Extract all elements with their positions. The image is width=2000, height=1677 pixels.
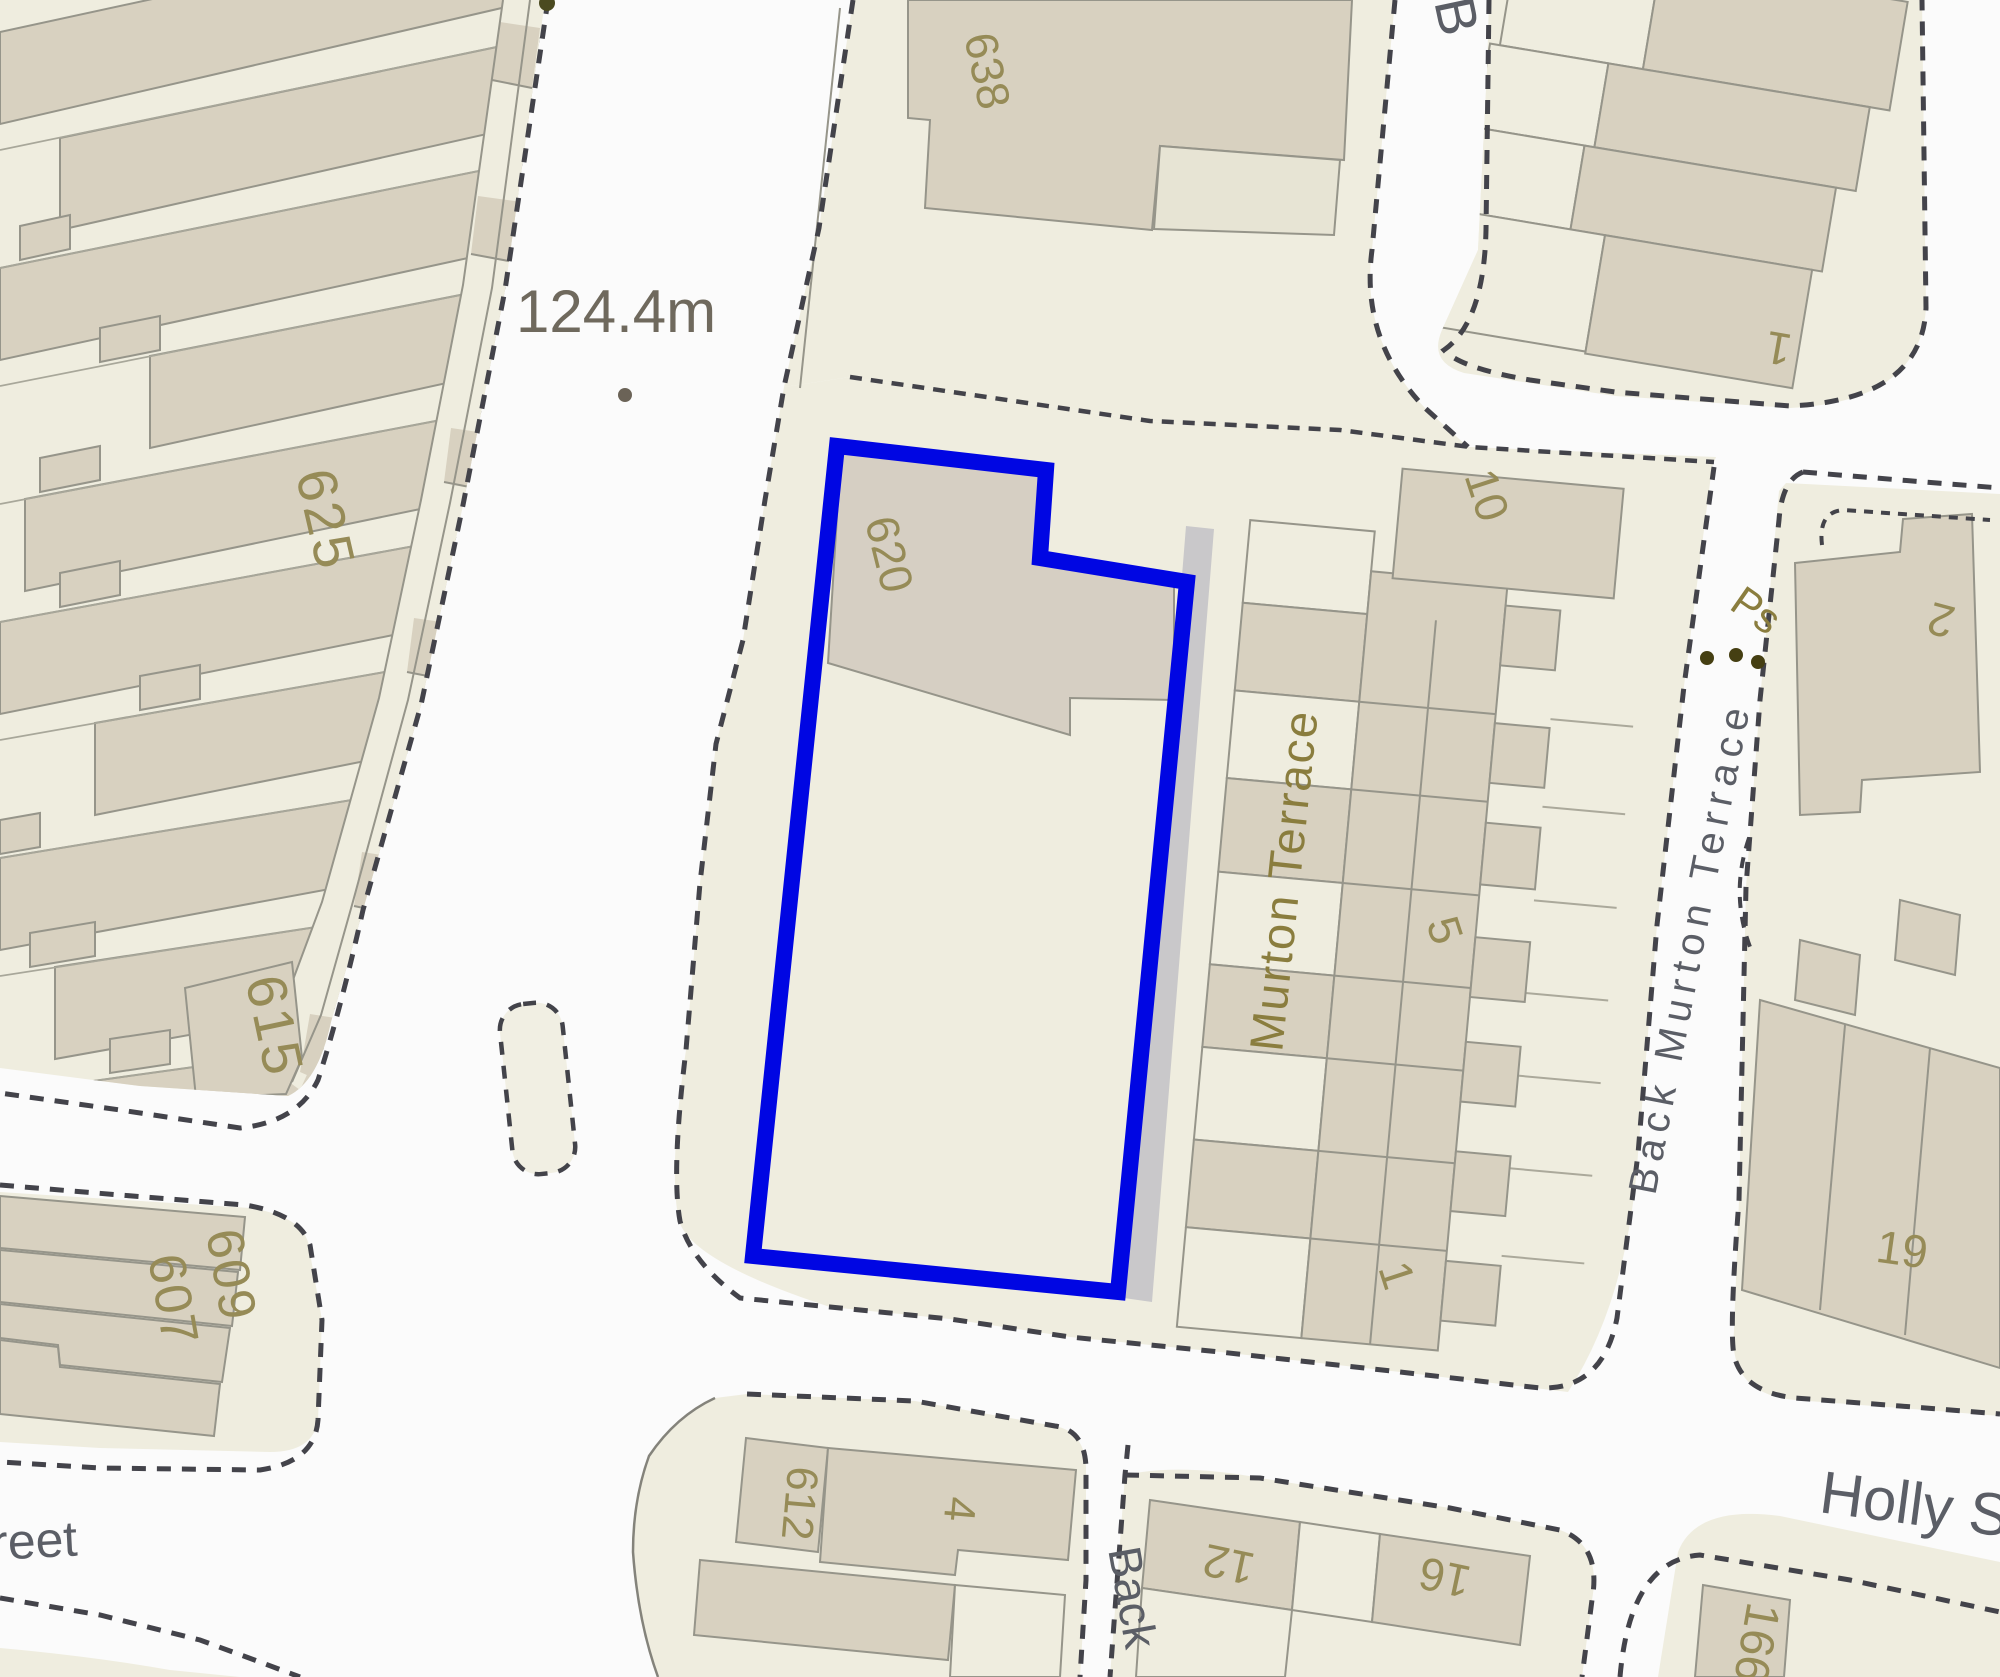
svg-text:4: 4	[934, 1495, 985, 1524]
svg-text:124.4m: 124.4m	[516, 278, 716, 345]
svg-text:16: 16	[1414, 1547, 1475, 1609]
svg-text:reet: reet	[0, 1511, 79, 1571]
svg-text:612: 612	[772, 1465, 827, 1542]
svg-text:12: 12	[1198, 1534, 1259, 1596]
svg-text:19: 19	[1873, 1220, 1931, 1279]
